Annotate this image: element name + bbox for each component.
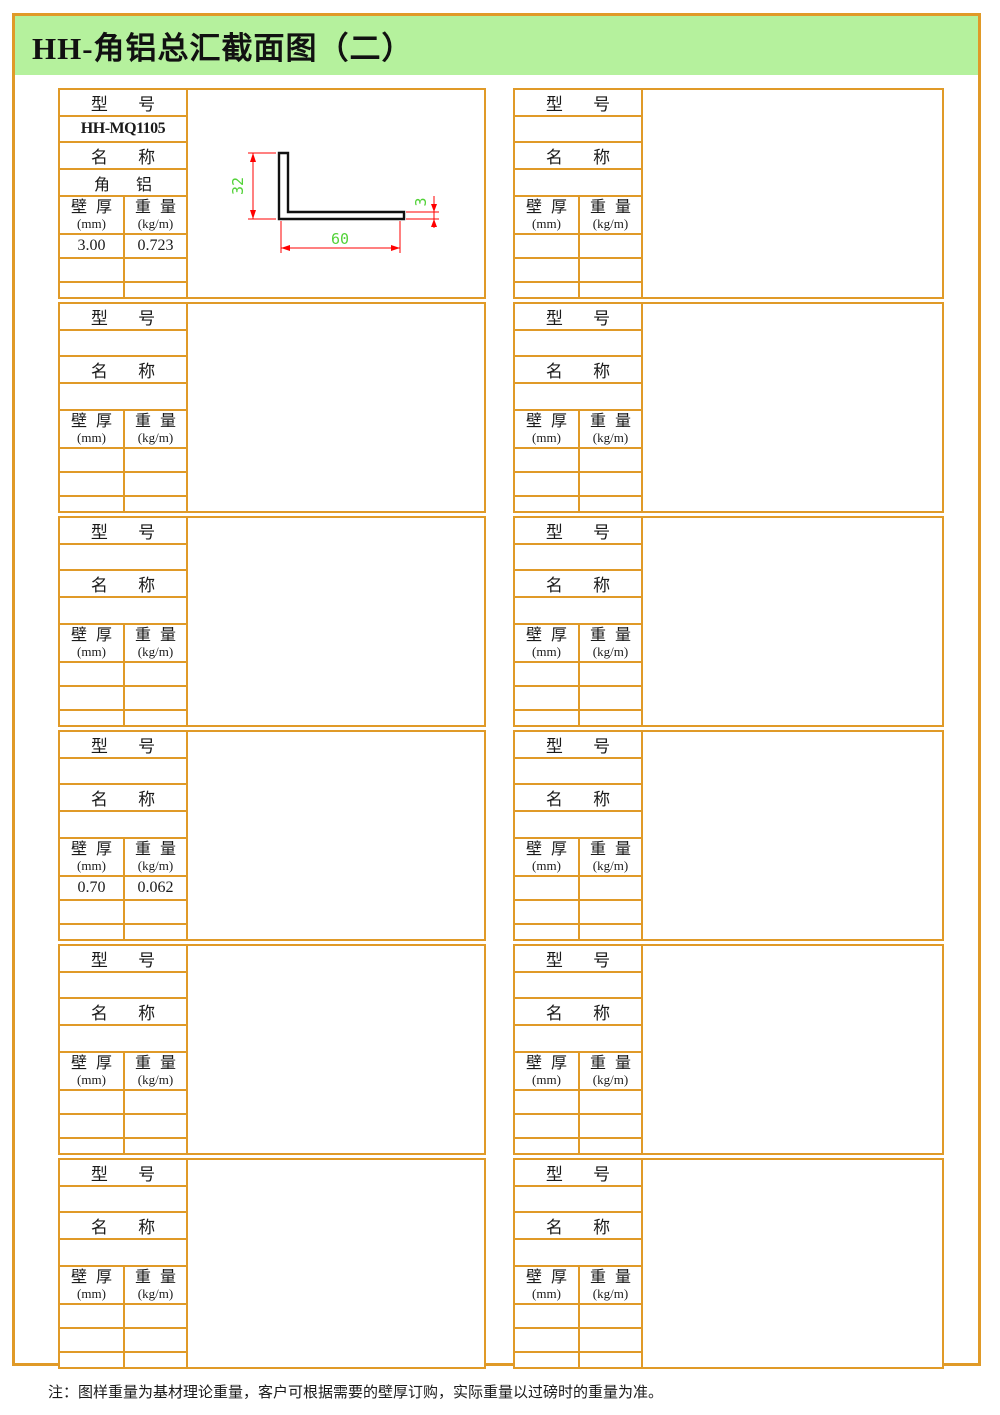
- model-value: [515, 1187, 641, 1213]
- data-row: [515, 901, 641, 925]
- data-row: [515, 1329, 641, 1353]
- drawing-area: [643, 304, 942, 511]
- model-value: [60, 545, 186, 571]
- thickness-value: [515, 925, 578, 939]
- profile-block: 型 号 名 称 壁 厚 (mm) 重 量 (kg/m): [58, 944, 486, 1155]
- model-label: 型 号: [515, 304, 641, 331]
- model-label: 型 号: [515, 90, 641, 117]
- weight-header: 重 量 (kg/m): [123, 411, 186, 447]
- thickness-label: 壁 厚: [71, 414, 112, 431]
- name-label: 名 称: [60, 785, 186, 812]
- weight-value: [123, 663, 186, 685]
- data-row: [60, 449, 186, 473]
- data-row: [60, 283, 186, 297]
- weight-unit-label: (kg/m): [593, 1287, 628, 1301]
- thickness-weight-header-row: 壁 厚 (mm) 重 量 (kg/m): [60, 411, 186, 449]
- weight-value: [123, 449, 186, 471]
- data-row: [515, 473, 641, 497]
- thickness-value: [515, 1353, 578, 1367]
- weight-header: 重 量 (kg/m): [123, 625, 186, 661]
- thickness-value: [515, 1115, 578, 1137]
- name-value: [60, 1026, 186, 1053]
- thickness-unit-label: (mm): [77, 1073, 106, 1087]
- weight-value: [578, 1329, 641, 1351]
- dim-thickness-label: 3: [412, 197, 430, 206]
- profile-block: 型 号 名 称 壁 厚 (mm) 重 量 (kg/m): [513, 944, 944, 1155]
- weight-header: 重 量 (kg/m): [123, 1053, 186, 1089]
- drawing-area: [188, 732, 484, 939]
- thickness-weight-header-row: 壁 厚 (mm) 重 量 (kg/m): [60, 1053, 186, 1091]
- thickness-header: 壁 厚 (mm): [515, 197, 578, 233]
- thickness-label: 壁 厚: [526, 842, 567, 859]
- model-label: 型 号: [515, 732, 641, 759]
- weight-value: [578, 449, 641, 471]
- thickness-value: [515, 877, 578, 899]
- weight-value: [578, 901, 641, 923]
- dim-width-label: 60: [331, 230, 349, 248]
- weight-value: [123, 711, 186, 725]
- spec-table: 型 号 名 称 壁 厚 (mm) 重 量 (kg/m): [515, 90, 643, 297]
- name-value: [515, 598, 641, 625]
- model-label: 型 号: [515, 518, 641, 545]
- profile-block: 型 号 名 称 壁 厚 (mm) 重 量 (kg/m): [58, 516, 486, 727]
- drawing-area: [188, 1160, 484, 1367]
- weight-unit-label: (kg/m): [138, 1287, 173, 1301]
- data-row: [60, 473, 186, 497]
- name-label: 名 称: [515, 1213, 641, 1240]
- thickness-label: 壁 厚: [526, 628, 567, 645]
- thickness-header: 壁 厚 (mm): [60, 197, 123, 233]
- thickness-value: [60, 663, 123, 685]
- weight-header: 重 量 (kg/m): [123, 197, 186, 233]
- blocks-grid: 型 号 HH-MQ1105 名 称 角 铝 壁 厚 (mm) 重 量 (kg/m…: [58, 88, 944, 1369]
- drawing-area: [643, 1160, 942, 1367]
- thickness-header: 壁 厚 (mm): [60, 411, 123, 447]
- profile-block: 型 号 名 称 壁 厚 (mm) 重 量 (kg/m): [513, 88, 944, 299]
- weight-value: [578, 473, 641, 495]
- profile-drawing: 32 60 3: [188, 90, 484, 297]
- data-row: [515, 1353, 641, 1367]
- weight-header: 重 量 (kg/m): [578, 625, 641, 661]
- name-label: 名 称: [60, 1213, 186, 1240]
- thickness-value: [515, 283, 578, 297]
- weight-unit-label: (kg/m): [593, 431, 628, 445]
- thickness-label: 壁 厚: [526, 1270, 567, 1287]
- thickness-value: [60, 1329, 123, 1351]
- thickness-value: [515, 259, 578, 281]
- data-row: [515, 1091, 641, 1115]
- name-label: 名 称: [60, 571, 186, 598]
- thickness-header: 壁 厚 (mm): [60, 1053, 123, 1089]
- thickness-unit-label: (mm): [77, 645, 106, 659]
- name-value: 角 铝: [60, 170, 186, 197]
- weight-value: [578, 663, 641, 685]
- spec-table: 型 号 名 称 壁 厚 (mm) 重 量 (kg/m): [60, 946, 188, 1153]
- thickness-label: 壁 厚: [526, 200, 567, 217]
- weight-label: 重 量: [590, 1270, 631, 1287]
- model-label: 型 号: [515, 1160, 641, 1187]
- data-row: [515, 235, 641, 259]
- weight-label: 重 量: [135, 414, 176, 431]
- drawing-area: [188, 304, 484, 511]
- thickness-unit-label: (mm): [77, 217, 106, 231]
- drawing-area: [188, 946, 484, 1153]
- thickness-value: [60, 1139, 123, 1153]
- thickness-value: [60, 901, 123, 923]
- weight-unit-label: (kg/m): [138, 431, 173, 445]
- weight-value: [123, 1115, 186, 1137]
- model-value: [60, 759, 186, 785]
- thickness-value: [60, 259, 123, 281]
- thickness-value: [60, 497, 123, 511]
- data-row: [515, 259, 641, 283]
- weight-value: [578, 1305, 641, 1327]
- thickness-value: [60, 687, 123, 709]
- angle-profile-outline: [279, 153, 404, 219]
- header-band: HH-角铝总汇截面图（二）: [15, 16, 978, 75]
- data-row: 3.00 0.723: [60, 235, 186, 259]
- thickness-weight-header-row: 壁 厚 (mm) 重 量 (kg/m): [515, 411, 641, 449]
- name-value: [60, 598, 186, 625]
- name-value: [515, 170, 641, 197]
- weight-header: 重 量 (kg/m): [578, 1267, 641, 1303]
- thickness-unit-label: (mm): [77, 1287, 106, 1301]
- weight-value: [123, 473, 186, 495]
- spec-table: 型 号 名 称 壁 厚 (mm) 重 量 (kg/m): [515, 304, 643, 511]
- weight-value: [123, 259, 186, 281]
- data-row: [60, 497, 186, 511]
- data-row: [515, 877, 641, 901]
- weight-label: 重 量: [135, 200, 176, 217]
- thickness-value: [515, 235, 578, 257]
- weight-value: [123, 1353, 186, 1367]
- thickness-unit-label: (mm): [532, 859, 561, 873]
- data-row: [60, 1091, 186, 1115]
- thickness-weight-header-row: 壁 厚 (mm) 重 量 (kg/m): [515, 1053, 641, 1091]
- drawing-area: [643, 732, 942, 939]
- thickness-weight-header-row: 壁 厚 (mm) 重 量 (kg/m): [60, 625, 186, 663]
- model-label: 型 号: [60, 518, 186, 545]
- weight-value: [123, 925, 186, 939]
- profile-block: 型 号 名 称 壁 厚 (mm) 重 量 (kg/m): [513, 730, 944, 941]
- name-label: 名 称: [515, 999, 641, 1026]
- name-value: [515, 1240, 641, 1267]
- name-label: 名 称: [60, 143, 186, 170]
- page-title: HH-角铝总汇截面图（二）: [32, 23, 414, 68]
- weight-value: [578, 497, 641, 511]
- data-row: [60, 1115, 186, 1139]
- data-row: [60, 259, 186, 283]
- thickness-value: [515, 663, 578, 685]
- thickness-header: 壁 厚 (mm): [515, 411, 578, 447]
- drawing-area: [188, 518, 484, 725]
- weight-label: 重 量: [135, 1270, 176, 1287]
- drawing-area: [643, 518, 942, 725]
- thickness-weight-header-row: 壁 厚 (mm) 重 量 (kg/m): [515, 197, 641, 235]
- spec-table: 型 号 名 称 壁 厚 (mm) 重 量 (kg/m): [515, 518, 643, 725]
- weight-unit-label: (kg/m): [593, 217, 628, 231]
- spec-table: 型 号 名 称 壁 厚 (mm) 重 量 (kg/m): [60, 518, 188, 725]
- thickness-header: 壁 厚 (mm): [515, 1267, 578, 1303]
- weight-label: 重 量: [590, 628, 631, 645]
- model-value: [515, 973, 641, 999]
- weight-value: [123, 283, 186, 297]
- thickness-value: [515, 1139, 578, 1153]
- spec-table: 型 号 名 称 壁 厚 (mm) 重 量 (kg/m): [60, 1160, 188, 1367]
- thickness-label: 壁 厚: [71, 1056, 112, 1073]
- weight-value: [123, 687, 186, 709]
- weight-value: [578, 711, 641, 725]
- weight-unit-label: (kg/m): [593, 1073, 628, 1087]
- weight-unit-label: (kg/m): [593, 645, 628, 659]
- weight-value: [578, 687, 641, 709]
- weight-label: 重 量: [135, 1056, 176, 1073]
- model-value: [515, 759, 641, 785]
- footer-note: 注：图样重量为基材理论重量，客户可根据需要的壁厚订购，实际重量以过磅时的重量为准…: [48, 1381, 663, 1402]
- weight-header: 重 量 (kg/m): [578, 411, 641, 447]
- name-value: [515, 384, 641, 411]
- weight-header: 重 量 (kg/m): [578, 1053, 641, 1089]
- thickness-header: 壁 厚 (mm): [60, 625, 123, 661]
- model-value: [515, 331, 641, 357]
- data-row: 0.70 0.062: [60, 877, 186, 901]
- weight-value: 0.723: [123, 235, 186, 257]
- thickness-value: [60, 1115, 123, 1137]
- thickness-value: [515, 711, 578, 725]
- thickness-value: [60, 1353, 123, 1367]
- profile-block: 型 号 名 称 壁 厚 (mm) 重 量 (kg/m): [58, 1158, 486, 1369]
- name-value: [60, 812, 186, 839]
- thickness-unit-label: (mm): [532, 431, 561, 445]
- data-row: [60, 1305, 186, 1329]
- weight-header: 重 量 (kg/m): [123, 1267, 186, 1303]
- weight-label: 重 量: [135, 842, 176, 859]
- thickness-unit-label: (mm): [532, 645, 561, 659]
- weight-value: [578, 1139, 641, 1153]
- weight-value: [578, 283, 641, 297]
- profile-block: 型 号 名 称 壁 厚 (mm) 重 量 (kg/m) 0.70 0.062: [58, 730, 486, 941]
- weight-value: [578, 259, 641, 281]
- drawing-area: [643, 90, 942, 297]
- data-row: [60, 901, 186, 925]
- data-row: [515, 687, 641, 711]
- thickness-weight-header-row: 壁 厚 (mm) 重 量 (kg/m): [515, 625, 641, 663]
- thickness-weight-header-row: 壁 厚 (mm) 重 量 (kg/m): [60, 839, 186, 877]
- data-row: [515, 663, 641, 687]
- drawing-area: 32 60 3: [188, 90, 484, 297]
- thickness-value: [60, 283, 123, 297]
- weight-header: 重 量 (kg/m): [578, 839, 641, 875]
- weight-value: [123, 1329, 186, 1351]
- data-row: [60, 663, 186, 687]
- data-row: [515, 711, 641, 725]
- name-label: 名 称: [515, 571, 641, 598]
- thickness-value: [60, 449, 123, 471]
- data-row: [515, 449, 641, 473]
- thickness-header: 壁 厚 (mm): [515, 625, 578, 661]
- thickness-value: [515, 1305, 578, 1327]
- model-value: [60, 973, 186, 999]
- weight-value: [578, 925, 641, 939]
- weight-value: 0.062: [123, 877, 186, 899]
- weight-value: [578, 1353, 641, 1367]
- weight-value: [578, 1091, 641, 1113]
- thickness-value: 3.00: [60, 235, 123, 257]
- weight-value: [123, 497, 186, 511]
- weight-value: [578, 877, 641, 899]
- thickness-label: 壁 厚: [71, 1270, 112, 1287]
- spec-table: 型 号 名 称 壁 厚 (mm) 重 量 (kg/m): [515, 946, 643, 1153]
- thickness-value: [60, 473, 123, 495]
- spec-table: 型 号 名 称 壁 厚 (mm) 重 量 (kg/m): [515, 732, 643, 939]
- thickness-value: [60, 1305, 123, 1327]
- thickness-value: [60, 925, 123, 939]
- name-value: [60, 1240, 186, 1267]
- profile-block: 型 号 名 称 壁 厚 (mm) 重 量 (kg/m): [513, 302, 944, 513]
- data-row: [515, 497, 641, 511]
- weight-value: [123, 1091, 186, 1113]
- data-row: [60, 1329, 186, 1353]
- weight-unit-label: (kg/m): [138, 645, 173, 659]
- spec-table: 型 号 HH-MQ1105 名 称 角 铝 壁 厚 (mm) 重 量 (kg/m…: [60, 90, 188, 297]
- name-value: [515, 1026, 641, 1053]
- data-row: [60, 711, 186, 725]
- thickness-unit-label: (mm): [532, 1287, 561, 1301]
- thickness-header: 壁 厚 (mm): [515, 839, 578, 875]
- thickness-value: [515, 901, 578, 923]
- name-label: 名 称: [60, 999, 186, 1026]
- data-row: [515, 1139, 641, 1153]
- thickness-value: [515, 687, 578, 709]
- thickness-value: [60, 1091, 123, 1113]
- model-value: [515, 117, 641, 143]
- weight-header: 重 量 (kg/m): [578, 197, 641, 233]
- thickness-label: 壁 厚: [71, 842, 112, 859]
- weight-value: [123, 1139, 186, 1153]
- weight-label: 重 量: [590, 414, 631, 431]
- thickness-unit-label: (mm): [532, 217, 561, 231]
- name-label: 名 称: [515, 143, 641, 170]
- thickness-header: 壁 厚 (mm): [60, 1267, 123, 1303]
- weight-label: 重 量: [590, 1056, 631, 1073]
- thickness-unit-label: (mm): [77, 859, 106, 873]
- model-value: [515, 545, 641, 571]
- weight-unit-label: (kg/m): [138, 217, 173, 231]
- model-label: 型 号: [60, 304, 186, 331]
- thickness-weight-header-row: 壁 厚 (mm) 重 量 (kg/m): [515, 839, 641, 877]
- thickness-value: [60, 711, 123, 725]
- weight-label: 重 量: [590, 200, 631, 217]
- thickness-label: 壁 厚: [71, 200, 112, 217]
- weight-value: [123, 1305, 186, 1327]
- spec-table: 型 号 名 称 壁 厚 (mm) 重 量 (kg/m): [515, 1160, 643, 1367]
- name-label: 名 称: [515, 785, 641, 812]
- thickness-value: [515, 1091, 578, 1113]
- thickness-weight-header-row: 壁 厚 (mm) 重 量 (kg/m): [60, 197, 186, 235]
- model-label: 型 号: [60, 90, 186, 117]
- weight-unit-label: (kg/m): [138, 1073, 173, 1087]
- weight-value: [123, 901, 186, 923]
- dim-height-label: 32: [229, 177, 247, 195]
- weight-unit-label: (kg/m): [138, 859, 173, 873]
- thickness-weight-header-row: 壁 厚 (mm) 重 量 (kg/m): [60, 1267, 186, 1305]
- weight-label: 重 量: [590, 842, 631, 859]
- thickness-label: 壁 厚: [71, 628, 112, 645]
- thickness-value: [515, 449, 578, 471]
- spec-table: 型 号 名 称 壁 厚 (mm) 重 量 (kg/m) 0.70 0.062: [60, 732, 188, 939]
- weight-value: [578, 235, 641, 257]
- thickness-header: 壁 厚 (mm): [515, 1053, 578, 1089]
- data-row: [515, 1115, 641, 1139]
- thickness-value: [515, 497, 578, 511]
- name-label: 名 称: [60, 357, 186, 384]
- weight-value: [578, 1115, 641, 1137]
- data-row: [515, 925, 641, 939]
- model-label: 型 号: [515, 946, 641, 973]
- model-value: [60, 331, 186, 357]
- weight-header: 重 量 (kg/m): [123, 839, 186, 875]
- name-value: [515, 812, 641, 839]
- profile-block: 型 号 HH-MQ1105 名 称 角 铝 壁 厚 (mm) 重 量 (kg/m…: [58, 88, 486, 299]
- thickness-header: 壁 厚 (mm): [60, 839, 123, 875]
- data-row: [60, 687, 186, 711]
- thickness-unit-label: (mm): [532, 1073, 561, 1087]
- thickness-value: 0.70: [60, 877, 123, 899]
- thickness-value: [515, 1329, 578, 1351]
- data-row: [60, 1139, 186, 1153]
- thickness-label: 壁 厚: [526, 1056, 567, 1073]
- spec-table: 型 号 名 称 壁 厚 (mm) 重 量 (kg/m): [60, 304, 188, 511]
- data-row: [60, 925, 186, 939]
- weight-label: 重 量: [135, 628, 176, 645]
- model-label: 型 号: [60, 732, 186, 759]
- data-row: [60, 1353, 186, 1367]
- thickness-unit-label: (mm): [77, 431, 106, 445]
- profile-block: 型 号 名 称 壁 厚 (mm) 重 量 (kg/m): [58, 302, 486, 513]
- data-row: [515, 1305, 641, 1329]
- model-label: 型 号: [60, 1160, 186, 1187]
- thickness-label: 壁 厚: [526, 414, 567, 431]
- page-border: HH-角铝总汇截面图（二） 型 号 HH-MQ1105 名 称 角 铝 壁 厚 …: [12, 13, 981, 1366]
- data-row: [515, 283, 641, 297]
- name-value: [60, 384, 186, 411]
- model-label: 型 号: [60, 946, 186, 973]
- profile-block: 型 号 名 称 壁 厚 (mm) 重 量 (kg/m): [513, 516, 944, 727]
- drawing-area: [643, 946, 942, 1153]
- thickness-value: [515, 473, 578, 495]
- model-value: HH-MQ1105: [60, 117, 186, 143]
- model-value: [60, 1187, 186, 1213]
- profile-block: 型 号 名 称 壁 厚 (mm) 重 量 (kg/m): [513, 1158, 944, 1369]
- weight-unit-label: (kg/m): [593, 859, 628, 873]
- name-label: 名 称: [515, 357, 641, 384]
- thickness-weight-header-row: 壁 厚 (mm) 重 量 (kg/m): [515, 1267, 641, 1305]
